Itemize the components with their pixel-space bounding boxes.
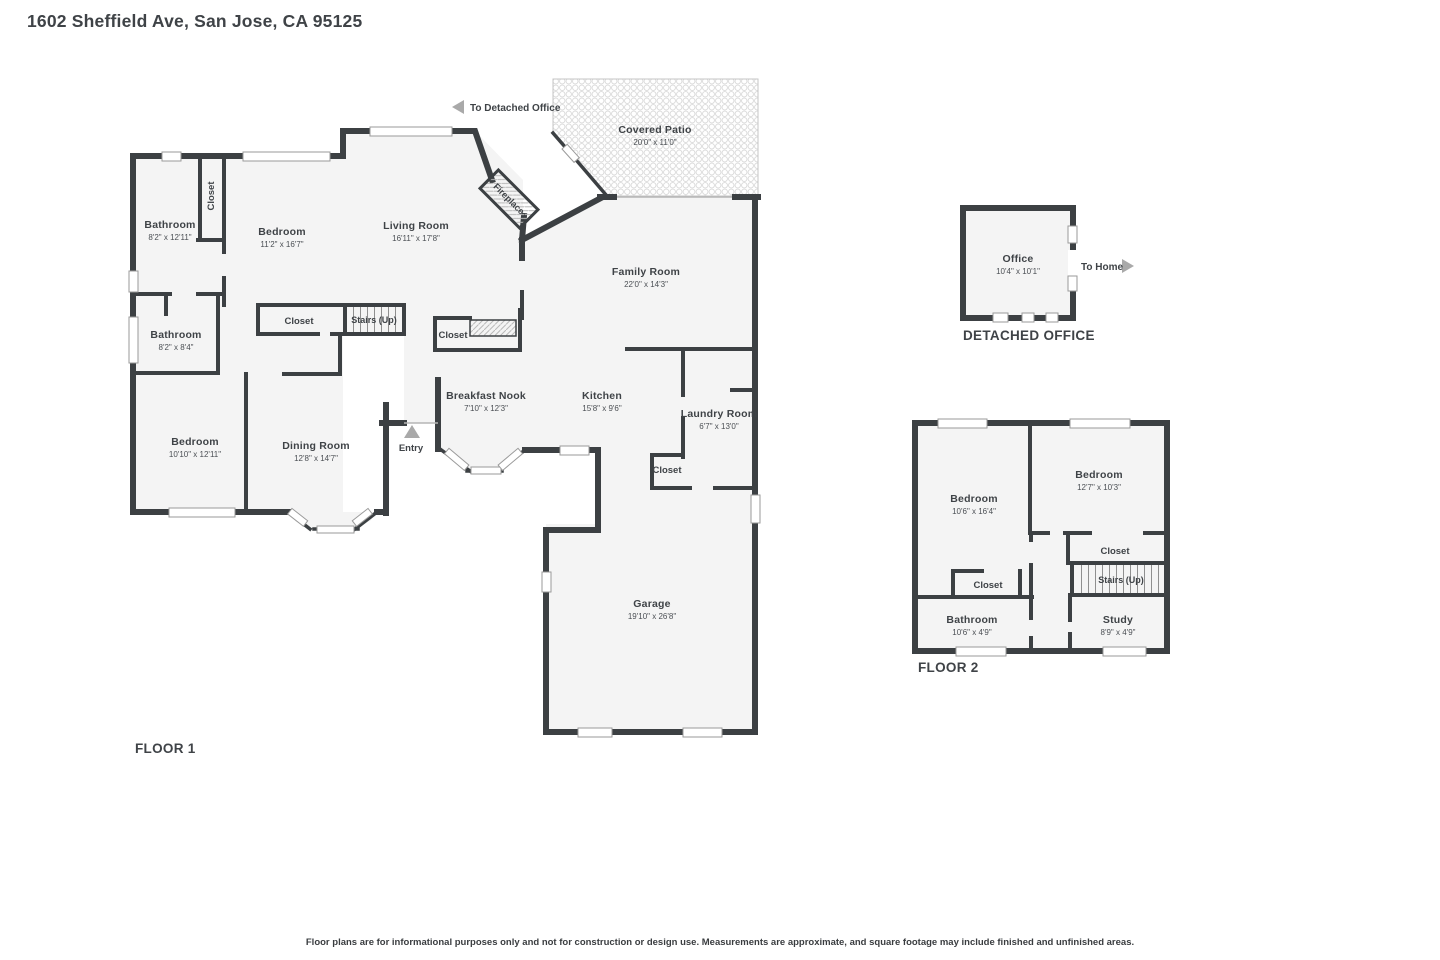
room-label-stairs-floor2: Stairs (Up) <box>1098 575 1144 585</box>
detached-office-plan: Office 10'4" x 10'1" To Home DETACHED OF… <box>963 208 1134 343</box>
room-label-closet-left-f2: Closet <box>973 580 1003 591</box>
room-dims-study: 8'9" x 4'9" <box>1101 628 1136 637</box>
room-label-family-room: Family Room <box>612 266 680 278</box>
to-detached-office-arrow-icon <box>452 100 464 114</box>
room-label-bedroom-left: Bedroom <box>950 493 998 505</box>
room-label-bathroom-front: Bathroom <box>144 219 195 231</box>
pantry-hatch <box>470 320 516 336</box>
room-dims-covered-patio: 20'0" x 11'0" <box>633 138 676 147</box>
room-label-closet-hall: Closet <box>284 316 314 327</box>
room-label-living-room: Living Room <box>383 220 449 232</box>
detached-office-label: DETACHED OFFICE <box>963 328 1095 343</box>
room-dims-bedroom-back: 10'10" x 12'11" <box>169 450 221 459</box>
room-label-bedroom-right: Bedroom <box>1075 469 1123 481</box>
entry-arrow-icon <box>404 425 420 438</box>
room-dims-laundry: 6'7" x 13'0" <box>699 422 739 431</box>
room-dims-family-room: 22'0" x 14'3" <box>624 280 668 289</box>
room-dims-bathroom-f2: 10'6" x 4'9" <box>952 628 992 637</box>
entry-label: Entry <box>399 443 424 454</box>
room-dims-bedroom-right: 12'7" x 10'3" <box>1077 483 1121 492</box>
room-label-laundry: Laundry Room <box>681 408 758 420</box>
room-label-covered-patio: Covered Patio <box>618 124 691 136</box>
room-label-closet-mid: Closet <box>438 330 468 341</box>
room-dims-kitchen: 15'8" x 9'6" <box>582 404 622 413</box>
room-label-bedroom-back: Bedroom <box>171 436 219 448</box>
room-label-breakfast-nook: Breakfast Nook <box>446 390 526 402</box>
room-dims-bedroom-front: 11'2" x 16'7" <box>260 240 303 249</box>
floor-plan-canvas: Fireplace Bathroom 8'2" x 12'11" Closet … <box>0 0 1440 960</box>
room-label-closet-laundry: Closet <box>652 465 682 476</box>
to-home-arrow-icon <box>1122 259 1134 273</box>
room-dims-office: 10'4" x 10'1" <box>996 267 1040 276</box>
room-label-bathroom-f2: Bathroom <box>946 614 997 626</box>
room-label-closet-front: Closet <box>206 181 217 211</box>
floor2-label: FLOOR 2 <box>918 660 979 675</box>
room-dims-dining: 12'8" x 14'7" <box>294 454 338 463</box>
room-dims-bathroom-hall: 8'2" x 8'4" <box>159 343 194 352</box>
room-label-bedroom-front: Bedroom <box>258 226 306 238</box>
room-dims-living-room: 16'11" x 17'8" <box>392 234 440 243</box>
to-home-label: To Home <box>1081 262 1123 273</box>
room-label-office: Office <box>1003 253 1034 265</box>
room-label-closet-right-f2: Closet <box>1100 546 1130 557</box>
to-detached-office-label: To Detached Office <box>470 103 561 114</box>
room-label-bathroom-hall: Bathroom <box>150 329 201 341</box>
room-dims-garage: 19'10" x 26'8" <box>628 612 676 621</box>
floor2-plan: Bedroom 10'6" x 16'4" Bedroom 12'7" x 10… <box>915 419 1167 675</box>
room-dims-bathroom-front: 8'2" x 12'11" <box>148 233 191 242</box>
room-label-stairs-floor1: Stairs (Up) <box>351 315 397 325</box>
disclaimer-text: Floor plans are for informational purpos… <box>0 937 1440 948</box>
room-label-dining: Dining Room <box>282 440 350 452</box>
room-label-garage: Garage <box>633 598 670 610</box>
room-dims-breakfast-nook: 7'10" x 12'3" <box>464 404 508 413</box>
room-label-kitchen: Kitchen <box>582 390 622 402</box>
room-label-study: Study <box>1103 614 1133 626</box>
floor1-label: FLOOR 1 <box>135 741 196 756</box>
room-dims-bedroom-left: 10'6" x 16'4" <box>952 507 996 516</box>
office-door-opening <box>1068 250 1078 278</box>
